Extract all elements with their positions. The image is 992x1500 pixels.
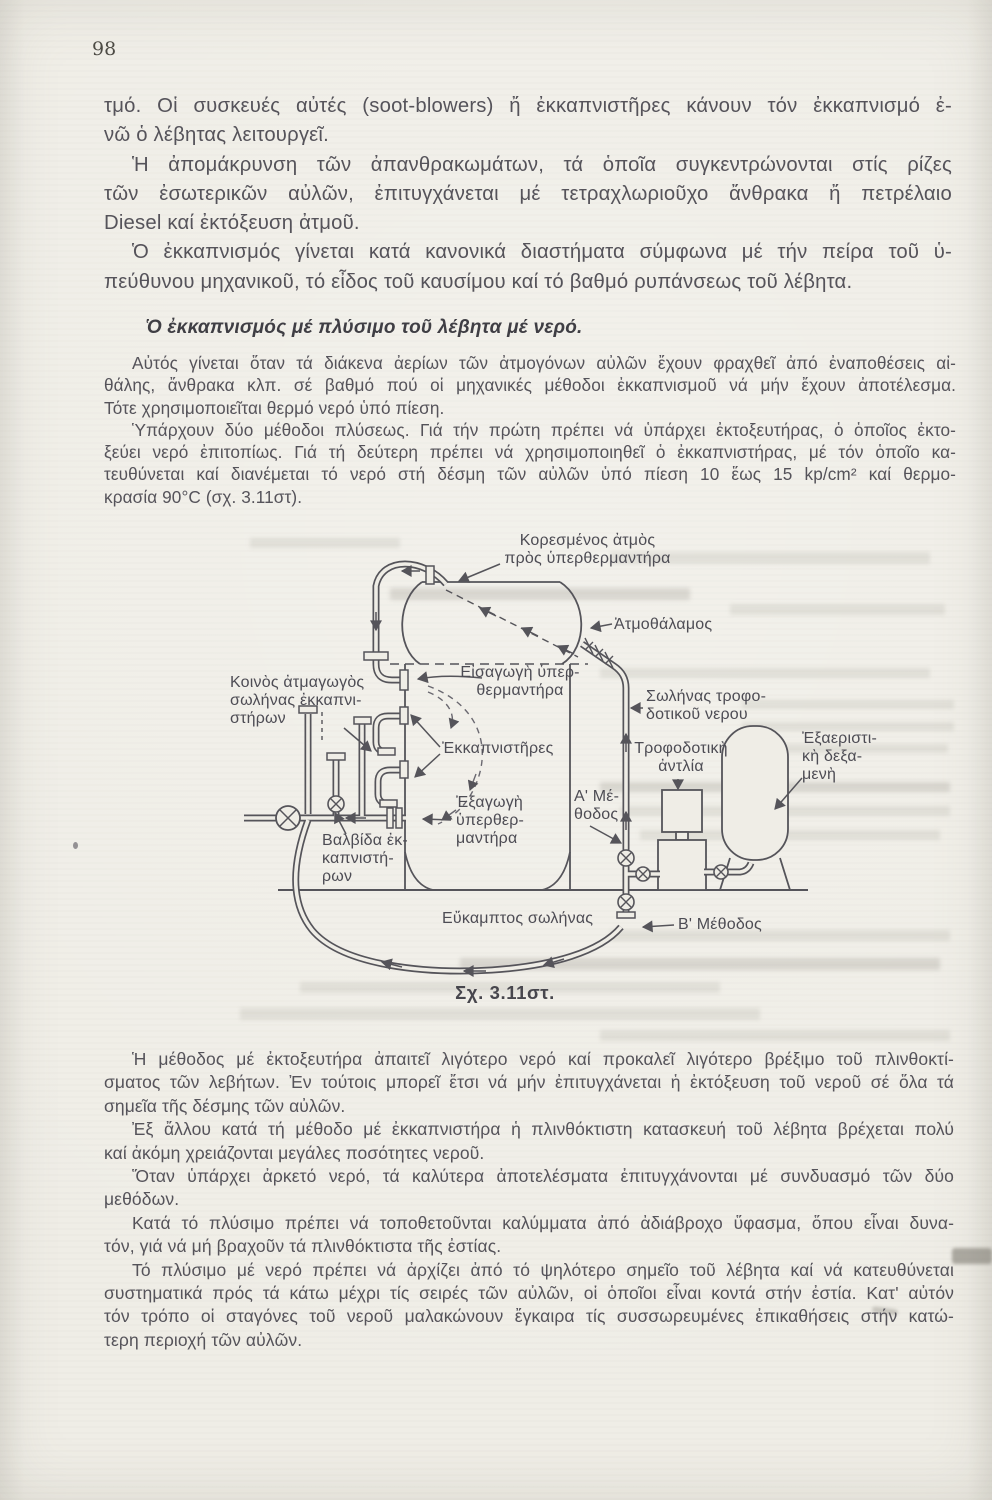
text-line: Τότε χρησιμοποιεῖται θερμό νερό ὑπό πίεσ… — [104, 397, 956, 419]
text-line: Κατά τό πλύσιμο πρέπει νά τοποθετοῦνται … — [104, 1212, 954, 1235]
scan-artifact — [73, 842, 78, 849]
text-line: Τό πλύσιμο μέ νερό πρέπει νά ἀρχίζει ἀπό… — [104, 1259, 954, 1282]
text-line: σματος τῶν λεβήτων. Ἐν τούτοις μπορεῖ ἔτ… — [104, 1071, 954, 1094]
figure-3-11st: Κορεσμένος ἀτμὸς πρὸς ὑπερθερμαντήρα Ἀτμ… — [230, 528, 990, 1003]
text-line: τερη περιοχή τῶν αὐλῶν. — [104, 1329, 954, 1352]
intro-paragraphs: τμό. Οἱ συσκευές αὐτές (soot-blowers) ἤ … — [104, 92, 952, 297]
text-line: σημεῖα τῆς δέσμης τῶν αὐλῶν. — [104, 1095, 954, 1118]
document-page: 98 τμό. Οἱ συσκευές αὐτές (soot-blowers)… — [0, 0, 992, 1500]
text-line: Ὁ ἐκκαπνισμός γίνεται κατά κανονικά διασ… — [104, 238, 952, 267]
label-superheater-outlet: Ἐξαγωγὴ ὑπερθερ- μαντήρα — [456, 794, 524, 849]
text-line: Diesel καί ἐκτόξευση ἀτμοῦ. — [104, 209, 952, 238]
text-line: συστηματικά πρός τά κάτω μέχρι τίς σειρέ… — [104, 1282, 954, 1305]
text-line: ξεύει νερό ἐπιτοπίως. Γιά τή δεύτερη πρέ… — [104, 441, 956, 463]
label-steam-chamber: Ἀτμοθάλαμος — [614, 616, 712, 634]
text-line: πεύθυνου μηχανικοῦ, τό εἶδος τοῦ καυσίμο… — [104, 268, 952, 297]
label-soot-blower-valve: Βαλβίδα ἐκ- καπνιστή- ρων — [322, 832, 408, 887]
text-line: τόν τρόπο οἱ σταγόνες τοῦ νεροῦ μαλακώνο… — [104, 1305, 954, 1328]
text-line: τῶν ἐσωτερικῶν αὐλῶν, ἐπιτυγχάνεται μέ τ… — [104, 180, 952, 209]
label-feed-water-pipe: Σωλήνας τροφο- δοτικοῦ νερου — [646, 688, 766, 724]
text-line: καί ἀκόμη χρειάζονται μεγάλες ποσότητες … — [104, 1142, 954, 1165]
text-line: κρασία 90°C (σχ. 3.11στ). — [104, 486, 956, 508]
figure-caption: Σχ. 3.11στ. — [400, 982, 610, 1004]
label-method-a: Α' Μέ- θοδος — [574, 788, 619, 824]
label-method-b: Β' Μέθοδος — [678, 916, 762, 934]
text-line: Ἡ μέθοδος μέ ἐκτοξευτήρα ἀπαιτεῖ λιγότερ… — [104, 1048, 954, 1071]
scan-artifact — [240, 1008, 760, 1020]
label-common-steam-pipe: Κοινὸς ἀτμαγωγὸς σωλήνας ἐκκαπνι- στήρων — [230, 674, 364, 729]
text-line: τευθύνεται καί διανέμεται τό νερό στή δέ… — [104, 463, 956, 485]
text-line: Αὐτός γίνεται ὅταν τά διάκενα ἀερίων τῶν… — [104, 352, 956, 374]
text-line: Ὅταν ὑπάρχει ἀρκετό νερό, τά καλύτερα ἀπ… — [104, 1165, 954, 1188]
label-deaerating-tank: Ἐξαεριστι- κὴ δεξα- μενὴ — [802, 730, 877, 785]
text-line: νῶ ὁ λέβητας λειτουργεῖ. — [104, 121, 952, 150]
closing-paragraphs: Ἡ μέθοδος μέ ἐκτοξευτήρα ἀπαιτεῖ λιγότερ… — [104, 1048, 954, 1352]
label-feed-pump: Τροφοδοτικὴ ἀντλία — [628, 740, 734, 776]
label-superheater-inlet: Εἰσαγωγὴ ὑπερ- θερμαντήρα — [450, 664, 590, 700]
text-line: τόν, γιά νά μή βραχοῦν τά πλινθόκτιστα τ… — [104, 1235, 954, 1258]
label-flexible-hose: Εὔκαμπτος σωλήνας — [442, 910, 593, 928]
text-line: Ἡ ἀπομάκρυνση τῶν ἀπανθρακωμάτων, τά ὁπο… — [104, 151, 952, 180]
page-number: 98 — [92, 38, 116, 60]
scan-artifact — [952, 1248, 992, 1264]
label-soot-blowers: Ἐκκαπνιστῆρες — [442, 740, 554, 758]
text-line: Ἐξ ἄλλου κατά τή μέθοδο μέ ἐκκαπνιστήρα … — [104, 1118, 954, 1141]
label-saturated-steam: Κορεσμένος ἀτμὸς πρὸς ὑπερθερμαντήρα — [470, 532, 705, 568]
text-line: μεθόδων. — [104, 1188, 954, 1211]
section-heading: Ὁ ἐκκαπνισμός μέ πλύσιμο τοῦ λέβητα μέ ν… — [146, 317, 583, 339]
scan-artifact — [600, 1030, 950, 1041]
feed-pump — [658, 790, 706, 890]
text-line: θάλης, ἄνθρακα κλπ. σέ βαθμό πού οἱ μηχα… — [104, 374, 956, 396]
washing-paragraphs: Αὐτός γίνεται ὅταν τά διάκενα ἀερίων τῶν… — [104, 352, 956, 508]
text-line: Ὑπάρχουν δύο μέθοδοι πλύσεως. Γιά τήν πρ… — [104, 419, 956, 441]
text-line: τμό. Οἱ συσκευές αὐτές (soot-blowers) ἤ … — [104, 92, 952, 121]
